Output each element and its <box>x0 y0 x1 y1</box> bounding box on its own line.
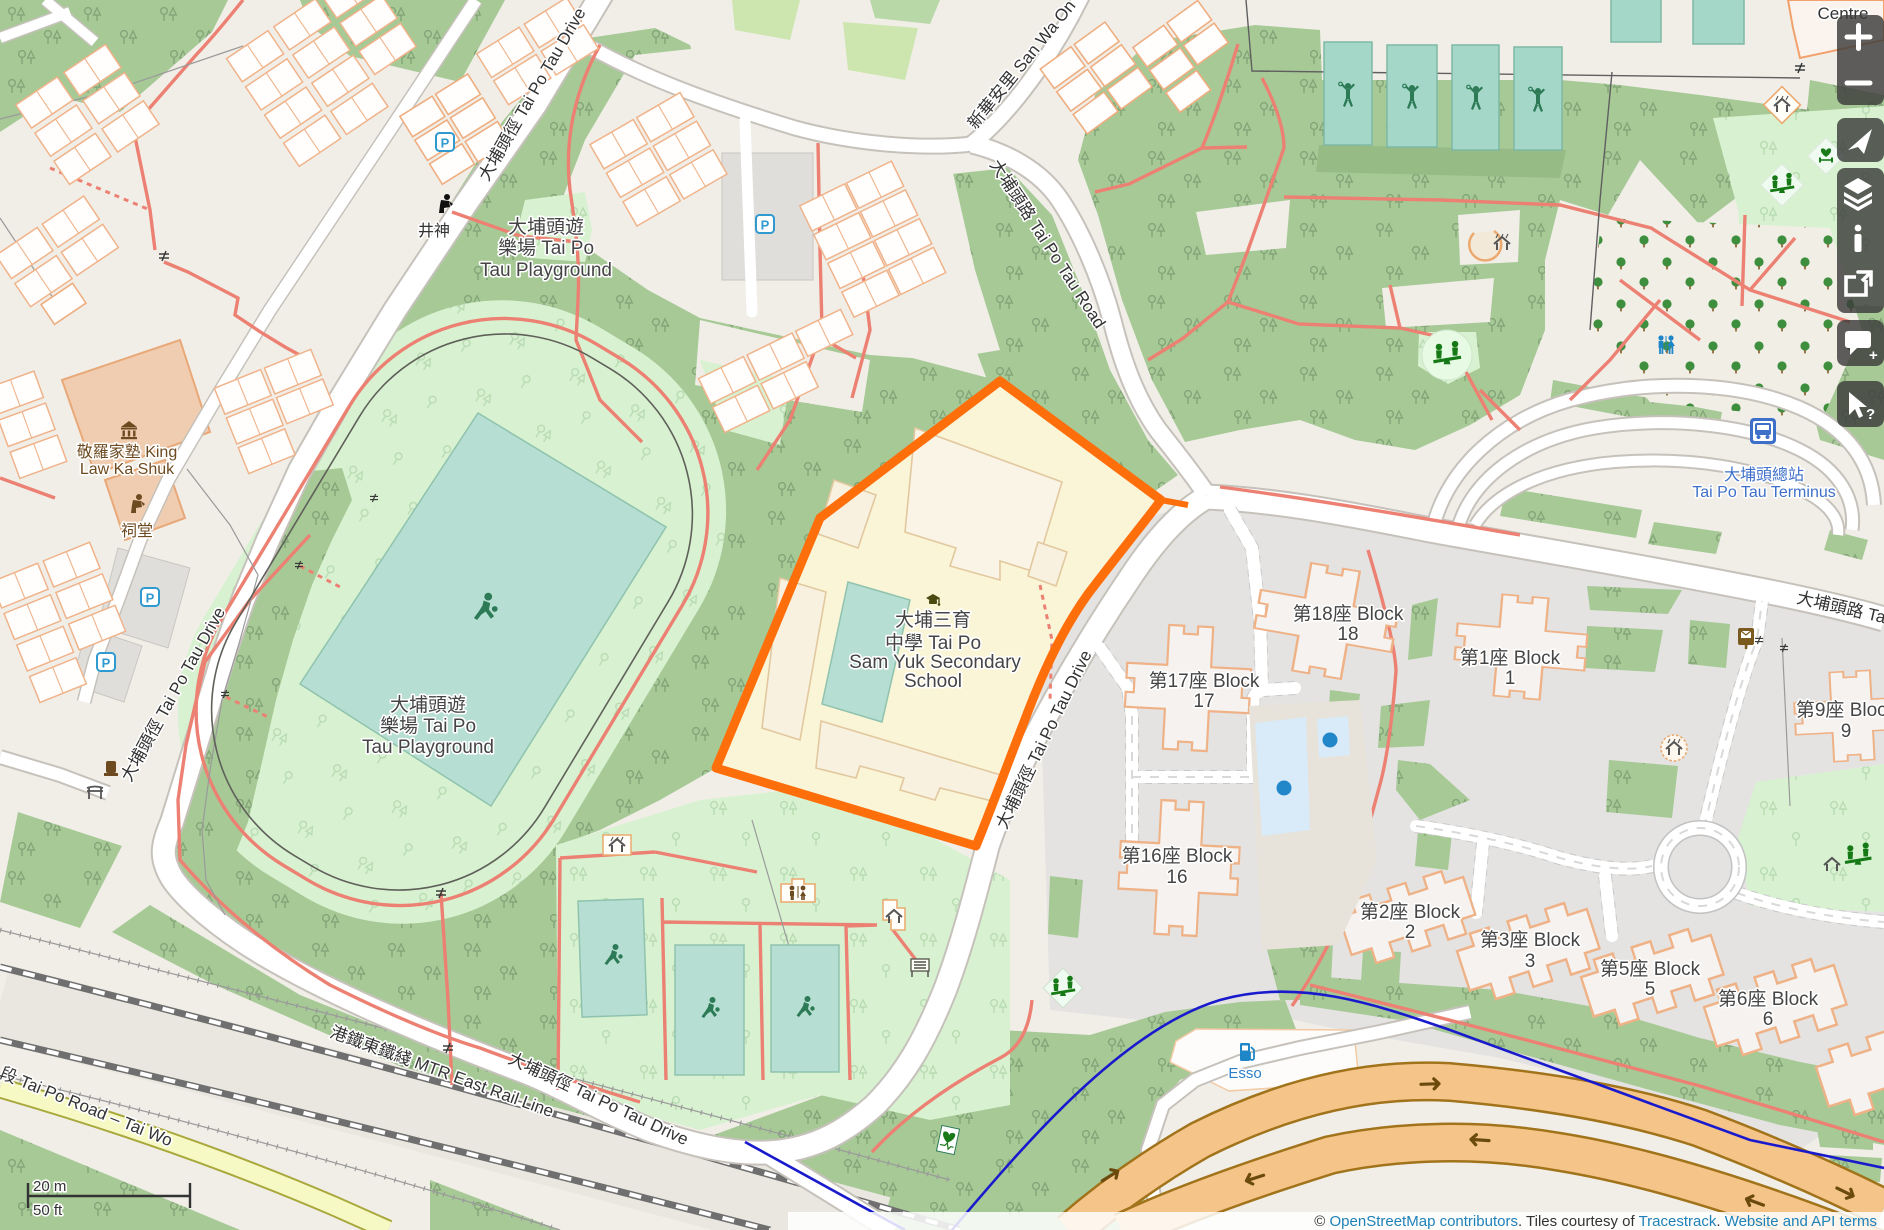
svg-text:大埔頭遊: 大埔頭遊 <box>508 216 584 238</box>
svg-text:Tau Playground: Tau Playground <box>480 260 612 281</box>
svg-text:18: 18 <box>1337 624 1358 645</box>
svg-text:School: School <box>904 671 962 692</box>
svg-text:17: 17 <box>1193 691 1214 712</box>
svg-text:敬羅家塾 King: 敬羅家塾 King <box>77 442 177 461</box>
svg-text:2: 2 <box>1405 922 1416 943</box>
svg-text:16: 16 <box>1166 867 1187 888</box>
svg-text:第5座 Block: 第5座 Block <box>1600 958 1701 980</box>
svg-text:© OpenStreetMap contributors.: © OpenStreetMap contributors. Tiles cour… <box>1314 1213 1877 1230</box>
svg-text:第17座 Block: 第17座 Block <box>1149 670 1260 692</box>
svg-text:6: 6 <box>1763 1009 1774 1030</box>
svg-text:1: 1 <box>1505 668 1516 689</box>
svg-text:9: 9 <box>1841 721 1852 742</box>
svg-text:20 m: 20 m <box>33 1178 66 1195</box>
svg-text:Tau Playground: Tau Playground <box>362 737 494 758</box>
svg-text:5: 5 <box>1645 979 1656 1000</box>
svg-text:第9座 Block: 第9座 Block <box>1796 699 1884 721</box>
svg-text:第3座 Block: 第3座 Block <box>1480 929 1581 951</box>
svg-text:第6座 Block: 第6座 Block <box>1718 988 1819 1010</box>
svg-text:50 ft: 50 ft <box>33 1202 63 1219</box>
svg-text:大埔三育: 大埔三育 <box>895 609 971 631</box>
svg-text:Law Ka Shuk: Law Ka Shuk <box>80 461 175 478</box>
svg-text:+: + <box>1869 347 1878 364</box>
svg-text:Sam Yuk Secondary: Sam Yuk Secondary <box>849 652 1021 673</box>
svg-text:祠堂: 祠堂 <box>121 522 153 540</box>
svg-text:中學 Tai Po: 中學 Tai Po <box>885 632 981 654</box>
svg-text:第1座 Block: 第1座 Block <box>1460 647 1561 669</box>
svg-text:大埔頭總站: 大埔頭總站 <box>1724 466 1804 484</box>
svg-text:3: 3 <box>1525 951 1536 972</box>
svg-text:Tai Po Tau Terminus: Tai Po Tau Terminus <box>1692 484 1835 501</box>
svg-text:井神: 井神 <box>418 222 450 240</box>
svg-text:樂場 Tai Po: 樂場 Tai Po <box>498 237 594 259</box>
svg-text:第2座 Block: 第2座 Block <box>1360 901 1461 923</box>
svg-text:樂場 Tai Po: 樂場 Tai Po <box>380 715 476 737</box>
svg-text:第16座 Block: 第16座 Block <box>1122 845 1233 867</box>
svg-text:?: ? <box>1866 406 1875 423</box>
svg-text:大埔頭遊: 大埔頭遊 <box>390 694 466 716</box>
svg-text:Esso: Esso <box>1228 1065 1261 1082</box>
svg-text:第18座 Block: 第18座 Block <box>1293 603 1404 625</box>
